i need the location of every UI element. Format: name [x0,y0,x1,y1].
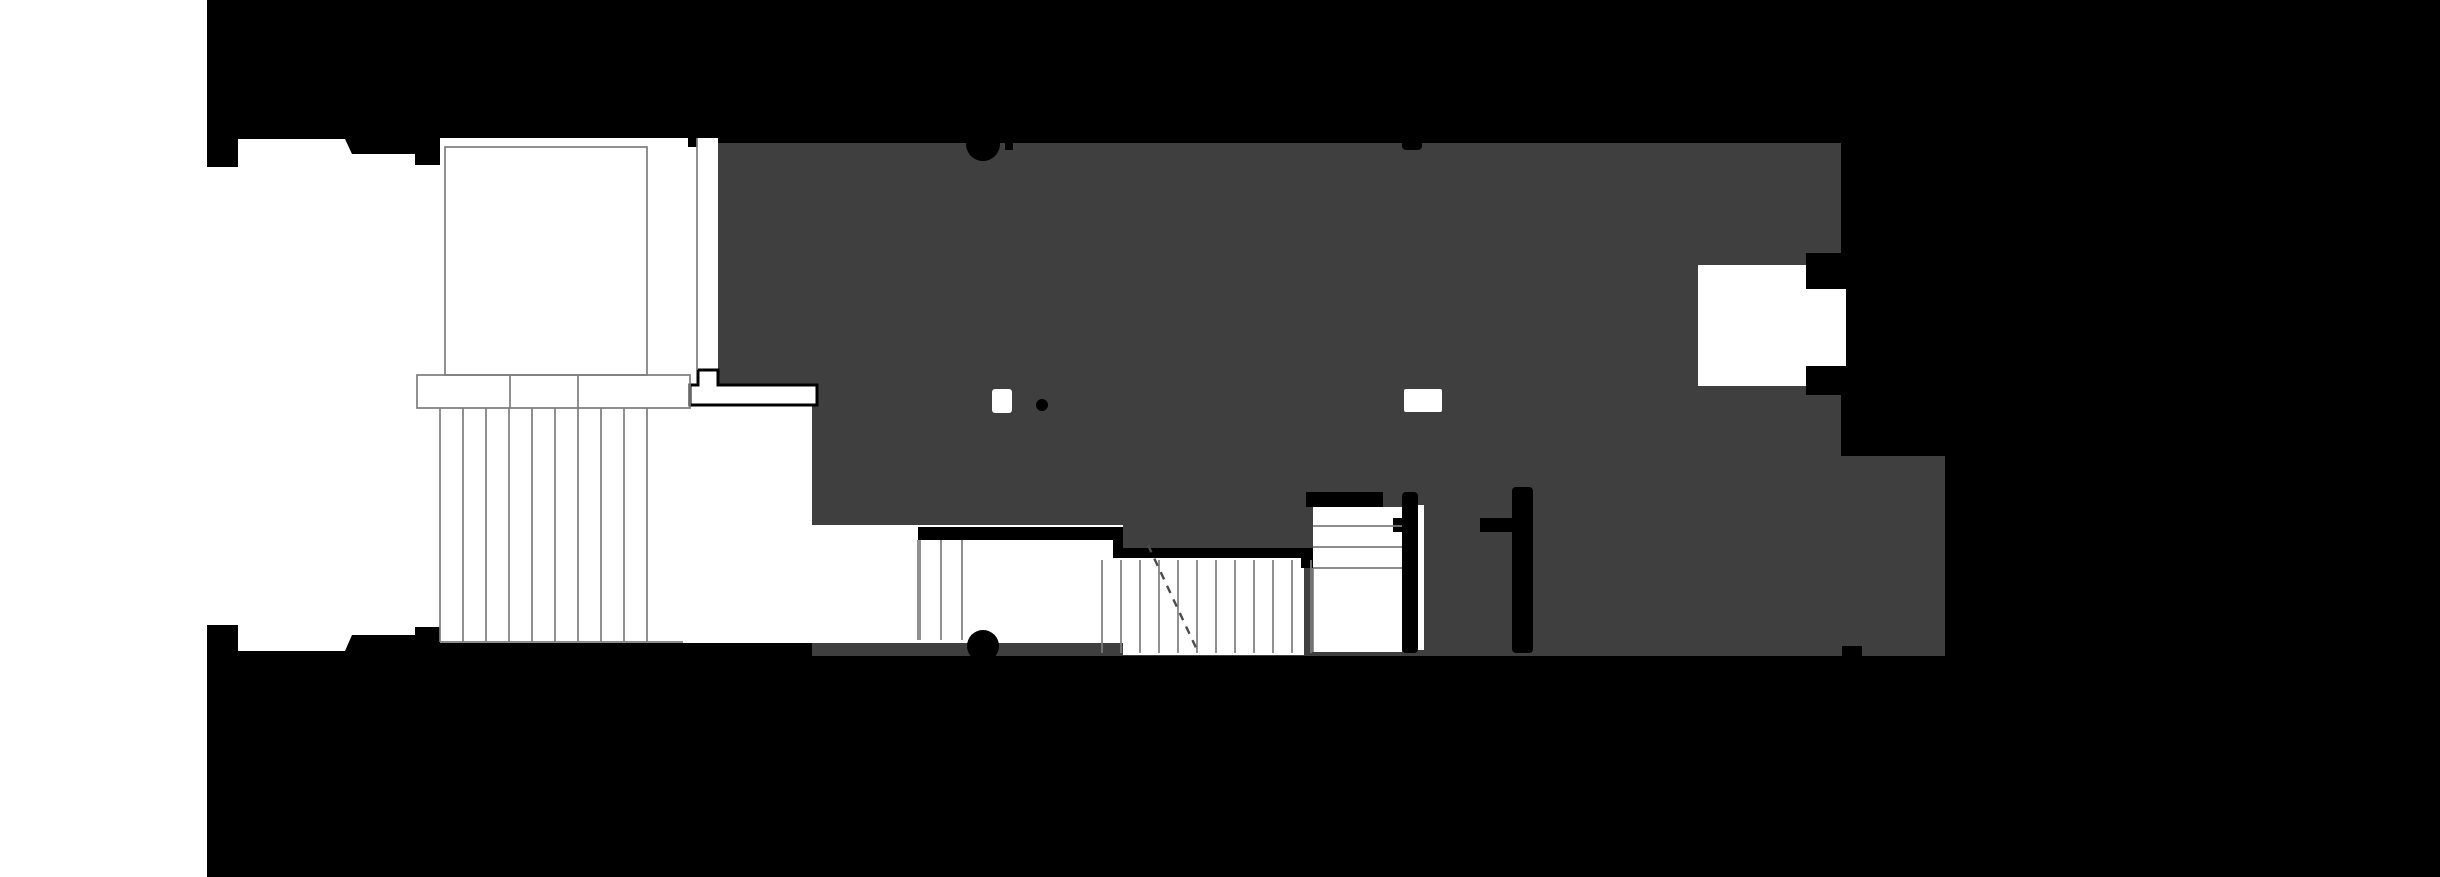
interior-wall-east-of-stair [1402,492,1418,653]
column-mark-bottom-edge [967,630,999,662]
stair-room-head-wall [1306,492,1383,507]
window-opening-left [992,389,1012,413]
floor-plan-figure [0,0,2440,877]
balcony-notch [1698,265,1806,386]
wall-gap-sliver [1418,505,1424,650]
door-swing-dot [1036,399,1048,411]
balcony-notch-extension [1806,289,1846,366]
balcony-jamb-top [1806,253,1846,289]
hall-wall-upper [918,527,1123,540]
top-edge-nick [1005,140,1013,150]
lower-hall-right [1123,548,1304,655]
floor-plan-canvas [0,0,2440,877]
hall-wall-lower [1113,548,1301,558]
door-stop-tick-corridor-wall [1480,518,1512,532]
door-stop-tick-left-wall [1393,518,1402,532]
court-side-area [690,385,812,643]
interior-wall-corridor [1512,487,1533,653]
lower-hall-left [812,525,1123,643]
bottom-right-tick [1842,646,1862,656]
top-edge-tab [1402,139,1422,150]
window-opening-right [1404,389,1442,412]
balcony-jamb-bottom [1806,366,1842,395]
context-bottom-band [207,625,1945,877]
switchback-stair-room [1313,507,1402,652]
column-mark-top-edge [966,127,1000,161]
left-paper-margin [0,0,207,877]
